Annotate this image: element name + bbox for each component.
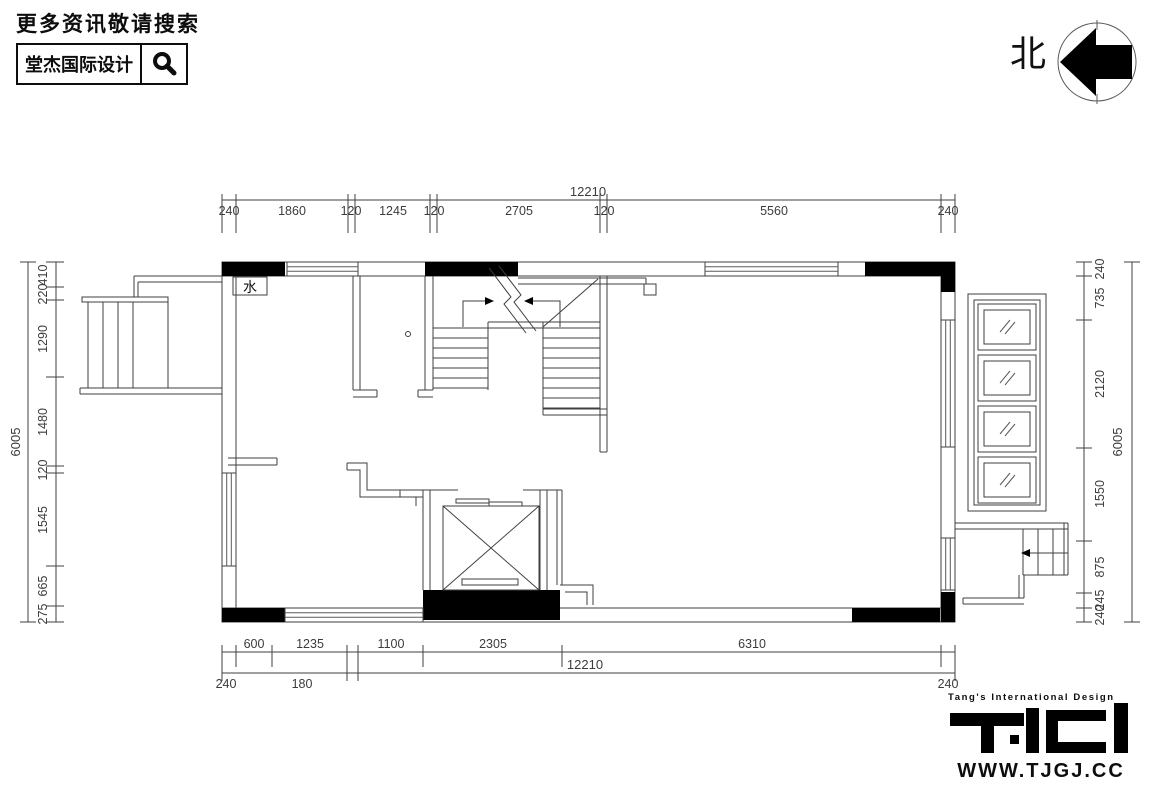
terrace-left	[80, 276, 222, 394]
dim-left-seg: 1480	[36, 408, 50, 436]
dim-left-seg: 410	[36, 265, 50, 286]
footer-logo-block: Tang's International Design WWW.TJGJ.CC	[948, 692, 1134, 783]
elevator	[400, 490, 593, 605]
dim-right-seg: 240	[1093, 605, 1107, 626]
dim-bottom-row2: 240	[938, 677, 959, 691]
window-right-lower	[941, 538, 955, 590]
dim-right-seg: 875	[1093, 557, 1107, 578]
glass-hatch	[1000, 422, 1015, 436]
elevator-door-panel	[456, 499, 489, 503]
dim-top-seg: 120	[594, 204, 615, 218]
water-shaft-label: 水	[243, 279, 257, 295]
dim-bottom-seg: 1235	[296, 637, 324, 651]
glass-hatch	[1000, 320, 1015, 334]
dim-left-seg: 275	[36, 604, 50, 625]
dim-top-seg: 240	[938, 204, 959, 218]
dim-top-seg: 120	[424, 204, 445, 218]
footer-tagline: Tang's International Design	[948, 692, 1134, 703]
dim-right-seg: 240	[1093, 259, 1107, 280]
dim-left-seg: 120	[36, 460, 50, 481]
threshold-step	[560, 585, 593, 605]
dim-top-seg: 1860	[278, 204, 306, 218]
dim-right-seg: 1550	[1093, 480, 1107, 508]
stair-direction-arrow	[1021, 549, 1030, 557]
header-branding: 更多资讯敬请搜索 堂杰国际设计	[16, 8, 200, 85]
dimension-chain-top: 12210 240 1860 120 1245 120 2705 120 556…	[219, 184, 959, 233]
brand-search-box: 堂杰国际设计	[16, 43, 188, 85]
brand-name: 堂杰国际设计	[18, 45, 142, 83]
floorplan-drawing: 12210 240 1860 120 1245 120 2705 120 556…	[0, 0, 1158, 800]
dim-bottom-total: 12210	[567, 657, 603, 672]
north-arrow: 北	[1010, 20, 1136, 104]
search-prompt-text: 更多资讯敬请搜索	[16, 8, 200, 38]
windows	[222, 262, 955, 622]
wall-columns	[222, 262, 955, 622]
stair-arrow-left	[463, 301, 485, 327]
dim-left-seg: 220	[36, 284, 50, 305]
north-arrow-icon	[1060, 28, 1132, 96]
dim-bottom-seg: 2305	[479, 637, 507, 651]
cabinet-panel	[978, 304, 1036, 350]
dim-bottom-row2: 180	[292, 677, 313, 691]
dim-top-seg: 1245	[379, 204, 407, 218]
footer-website: WWW.TJGJ.CC	[948, 760, 1134, 783]
cabinet-panel	[978, 457, 1036, 503]
cabinet-panel	[978, 406, 1036, 452]
tid-logo	[948, 703, 1134, 753]
water-shaft: 水	[233, 277, 267, 295]
staircase-main	[418, 266, 607, 452]
dim-left-seg: 665	[36, 576, 50, 597]
window-bottom	[285, 608, 423, 622]
search-icon	[142, 45, 186, 83]
cabinet-panel	[978, 355, 1036, 401]
dim-top-seg: 120	[341, 204, 362, 218]
window-top-right	[705, 262, 838, 276]
dim-left-total: 6005	[8, 428, 23, 457]
dim-bottom-seg: 6310	[738, 637, 766, 651]
glass-hatch	[1000, 473, 1015, 487]
glass-hatch	[1000, 371, 1015, 385]
window-left	[222, 473, 236, 566]
floorplan-sheet: 12210 240 1860 120 1245 120 2705 120 556…	[0, 0, 1158, 800]
window-top-left	[287, 262, 358, 276]
exterior-stair-right	[955, 523, 1068, 604]
dim-right-seg: 735	[1093, 288, 1107, 309]
dim-bottom-seg: 1100	[378, 637, 405, 651]
interior-walls	[228, 276, 656, 506]
dim-left-seg: 1545	[36, 506, 50, 534]
dim-top-seg: 5560	[760, 204, 788, 218]
window-right-upper	[941, 320, 955, 447]
elevator-counterweight	[462, 579, 518, 585]
dim-top-total: 12210	[570, 184, 606, 199]
north-label: 北	[1010, 33, 1046, 74]
stair-arrow-right	[533, 301, 560, 327]
cabinet-right	[968, 294, 1046, 511]
stair-landing-diagonal	[543, 279, 598, 327]
dimension-chain-right: 240 735 2120 1550 875 245 240 6005	[1076, 259, 1140, 626]
dim-top-seg: 2705	[505, 204, 533, 218]
exterior-walls	[222, 262, 955, 622]
dim-left-seg: 1290	[36, 325, 50, 353]
dim-right-total: 6005	[1110, 428, 1125, 457]
door-pivot-dot	[406, 332, 411, 337]
dimension-chain-left: 6005 410 220 1290 1480 120 1545 665 275	[8, 262, 64, 624]
dim-bottom-row2: 240	[216, 677, 237, 691]
dimension-chain-bottom: 600 1235 1100 2305 6310 12210 240 180 24…	[216, 637, 959, 691]
dim-top-seg: 240	[219, 204, 240, 218]
dim-right-seg: 2120	[1093, 370, 1107, 398]
elevator-door-panel	[489, 502, 522, 506]
dim-bottom-seg: 600	[244, 637, 265, 651]
